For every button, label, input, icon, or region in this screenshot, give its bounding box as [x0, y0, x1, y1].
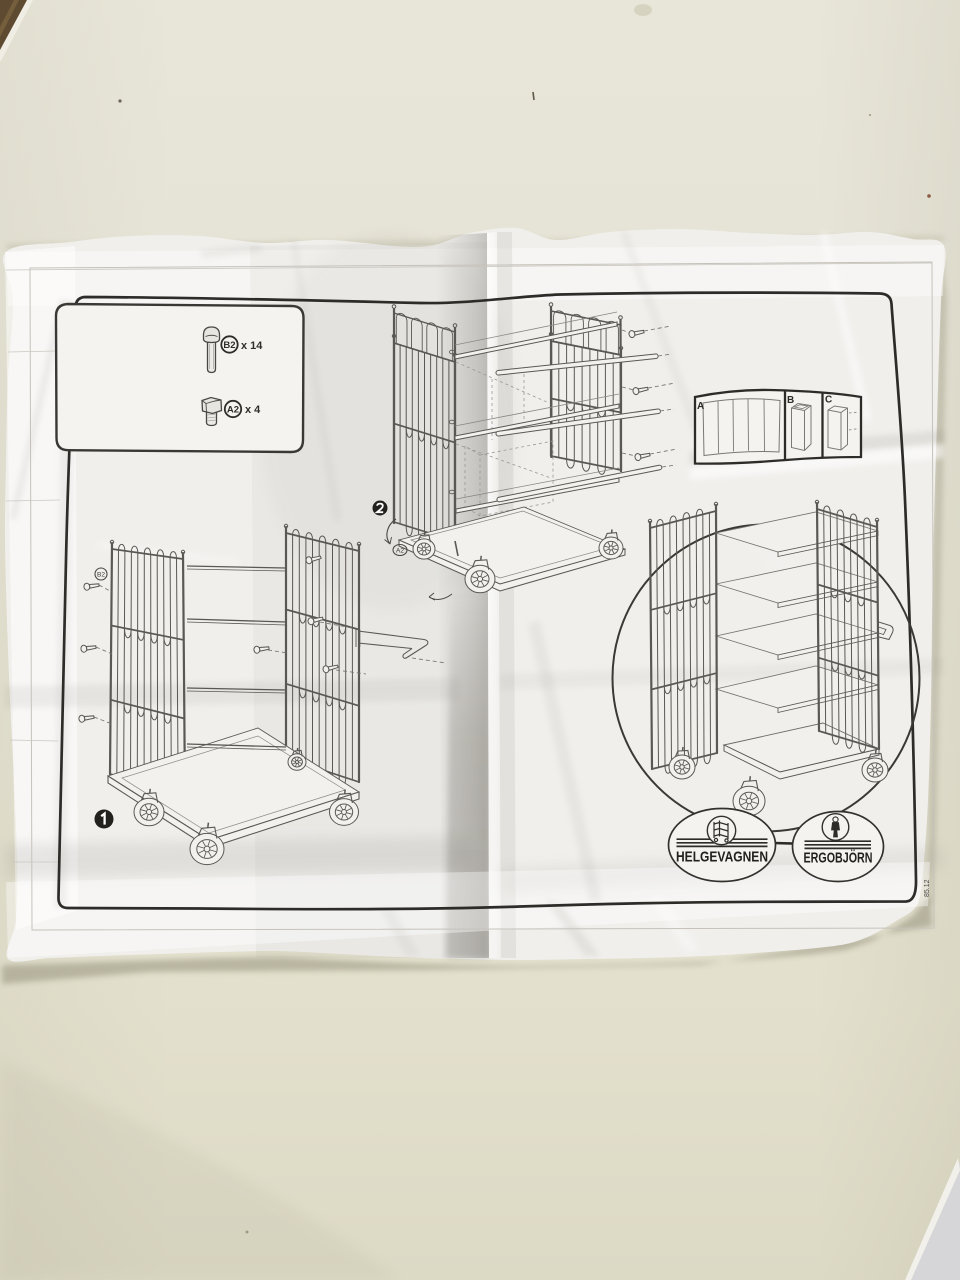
- svg-text:85.12: 85.12: [924, 879, 931, 897]
- svg-text:A2: A2: [227, 405, 239, 416]
- svg-text:B2: B2: [223, 340, 235, 351]
- svg-text:A: A: [697, 401, 704, 412]
- svg-text:B: B: [787, 395, 794, 406]
- svg-text:A2: A2: [396, 548, 404, 555]
- svg-text:HELGEVAGNEN: HELGEVAGNEN: [676, 849, 768, 866]
- svg-text:B2: B2: [97, 572, 105, 579]
- svg-text:x 4: x 4: [245, 404, 261, 416]
- svg-text:x 14: x 14: [241, 340, 263, 352]
- svg-text:ERGOBJÖRN: ERGOBJÖRN: [804, 850, 873, 867]
- svg-text:C: C: [825, 395, 832, 406]
